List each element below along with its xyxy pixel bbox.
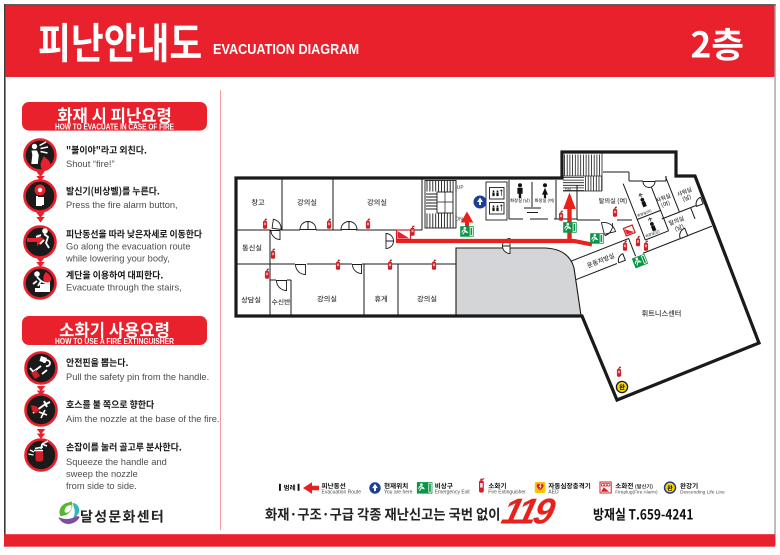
svg-text:Pull the safety pin from the h: Pull the safety pin from the handle. (66, 372, 209, 382)
svg-text:Shout “fire!”: Shout “fire!” (66, 159, 115, 169)
svg-text:HOW TO EVACUATE IN CASE OF FIR: HOW TO EVACUATE IN CASE OF FIRE (55, 122, 175, 131)
svg-text:EVACUATION DIAGRAM: EVACUATION DIAGRAM (213, 42, 359, 58)
svg-text:Squeeze the handle and: Squeeze the handle and (66, 457, 167, 467)
svg-text:Evacuation Route: Evacuation Route (322, 490, 362, 496)
svg-text:Emergency Exit: Emergency Exit (435, 490, 471, 496)
svg-text:Aim the nozzle at the base of: Aim the nozzle at the base of the fire. (66, 414, 220, 424)
svg-text:You are here: You are here (384, 490, 413, 496)
svg-text:sweep the nozzle: sweep the nozzle (66, 469, 138, 479)
svg-text:while lowering your body,: while lowering your body, (65, 254, 170, 264)
svg-text:Descending Life Line: Descending Life Line (680, 490, 725, 496)
svg-text:Press the fire alarm button,: Press the fire alarm button, (66, 200, 178, 210)
svg-text:Go along the evacuation route: Go along the evacuation route (66, 242, 191, 252)
svg-text:Evacuate through the stairs,: Evacuate through the stairs, (66, 283, 182, 293)
svg-text:HOW TO USE A FIRE EXTINGUISHER: HOW TO USE A FIRE EXTINGUISHER (55, 337, 174, 346)
svg-text:Fireplug(Fire Alarm): Fireplug(Fire Alarm) (615, 490, 658, 496)
svg-text:from side to side.: from side to side. (66, 481, 137, 491)
